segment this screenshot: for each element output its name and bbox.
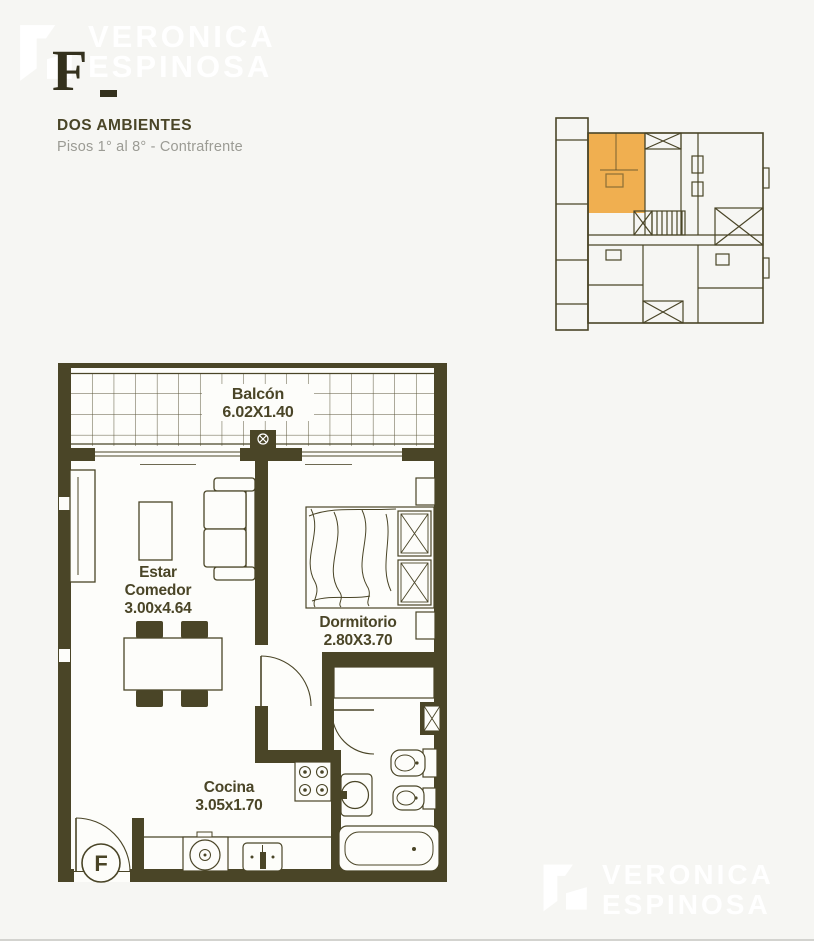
stove [295,762,331,801]
living-dims: 3.00x4.64 [124,600,192,617]
brand-watermark-bottom: VERONICA ESPINOSA [540,860,774,920]
balcony-label: Balcón [232,386,284,403]
balcony-dims: 6.02X1.40 [222,404,293,421]
bathtub [339,826,439,871]
wall-unit [70,470,95,582]
kitchen-label: Cocina [204,779,255,796]
bedroom-label: Dormitorio [319,614,396,631]
vent-shaft [424,706,440,731]
floor-plan-drawing: F Balcón 6.02X1.40 Estar Comedor 3.00x4.… [0,0,814,950]
living-label-2: Comedor [125,582,192,599]
entrance-marker: F [82,844,120,882]
floor-plan-sheet: VERONICA ESPINOSA F DOS AMBIENTES Pisos … [0,0,814,950]
page-margin-bottom [0,941,814,950]
brand-logo-icon [540,860,592,916]
entrance-label: F [94,851,107,876]
closet [334,667,434,698]
living-label-1: Estar [139,564,177,581]
bathroom-sink [341,774,372,816]
coffee-table [139,502,172,560]
brand-line-2: ESPINOSA [602,890,774,920]
kitchen-dims: 3.05x1.70 [195,797,262,814]
brand-line-1: VERONICA [602,860,774,890]
bedroom-dims: 2.80X3.70 [324,632,393,649]
toilet [391,749,437,777]
nightstand [416,478,435,505]
kitchen-sink [243,843,282,871]
washing-machine [183,832,228,871]
nightstand [416,612,435,639]
sofa [204,478,255,580]
bidet [393,786,436,810]
